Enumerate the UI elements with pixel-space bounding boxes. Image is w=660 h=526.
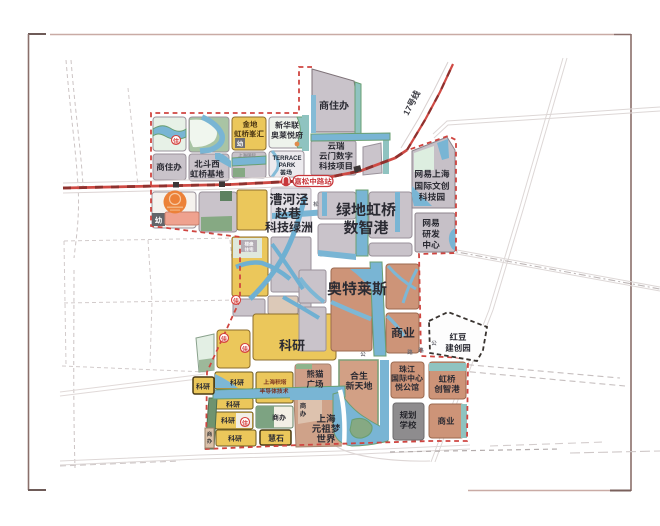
- svg-text:办: 办: [207, 437, 213, 445]
- svg-text:虹桥基地: 虹桥基地: [190, 168, 225, 180]
- svg-text:新天地: 新天地: [345, 379, 372, 392]
- svg-text:奥莱悦府: 奥莱悦府: [271, 130, 303, 141]
- svg-text:半导体技术: 半导体技术: [260, 386, 289, 395]
- svg-text:路: 路: [407, 348, 413, 356]
- svg-text:慧石: 慧石: [268, 433, 284, 444]
- svg-text:幼: 幼: [237, 138, 244, 148]
- svg-text:科研: 科研: [196, 382, 210, 392]
- svg-text:TERRACE: TERRACE: [272, 156, 301, 162]
- svg-text:佳: 佳: [233, 296, 239, 305]
- svg-text:建创园: 建创园: [445, 342, 471, 354]
- svg-text:商住办: 商住办: [319, 97, 349, 112]
- svg-text:悦公馆: 悦公馆: [395, 382, 419, 393]
- svg-text:学校: 学校: [399, 419, 417, 431]
- svg-text:住: 住: [173, 136, 179, 145]
- svg-text:商业: 商业: [437, 415, 455, 427]
- svg-text:佳: 佳: [242, 344, 248, 353]
- svg-text:广场: 广场: [306, 378, 324, 390]
- svg-text:科研: 科研: [226, 400, 240, 410]
- svg-text:创智港: 创智港: [434, 383, 460, 395]
- svg-text:办: 办: [300, 408, 307, 418]
- svg-text:幼: 幼: [155, 215, 163, 226]
- svg-text:荟场: 荟场: [280, 168, 292, 177]
- svg-text:数智港: 数智港: [343, 217, 388, 238]
- svg-text:科研: 科研: [228, 434, 242, 444]
- svg-text:科技绿洲: 科技绿洲: [265, 219, 313, 236]
- svg-text:科研: 科研: [230, 378, 244, 388]
- svg-text:上海国际: 上海国际: [238, 153, 256, 159]
- svg-text:佳: 佳: [221, 334, 227, 343]
- svg-text:公: 公: [431, 339, 437, 347]
- svg-text:世界: 世界: [316, 431, 336, 445]
- svg-text:上海积塔: 上海积塔: [263, 377, 286, 386]
- svg-text:科研: 科研: [279, 335, 305, 354]
- svg-text:住: 住: [242, 418, 248, 427]
- svg-text:商住办: 商住办: [156, 161, 182, 173]
- svg-text:商业: 商业: [391, 324, 415, 341]
- svg-text:科技项目: 科技项目: [319, 160, 353, 172]
- svg-text:中心: 中心: [422, 238, 440, 251]
- svg-text:科技园: 科技园: [419, 190, 446, 203]
- svg-text:商办: 商办: [272, 413, 286, 423]
- svg-text:路: 路: [418, 346, 424, 354]
- svg-text:公: 公: [360, 350, 366, 358]
- svg-text:科研: 科研: [221, 416, 235, 426]
- svg-text:住宅: 住宅: [245, 247, 254, 253]
- svg-text:奥特莱斯: 奥特莱斯: [327, 278, 387, 299]
- svg-text:松: 松: [313, 200, 319, 208]
- svg-text:嘉松中路站: 嘉松中路站: [294, 176, 332, 187]
